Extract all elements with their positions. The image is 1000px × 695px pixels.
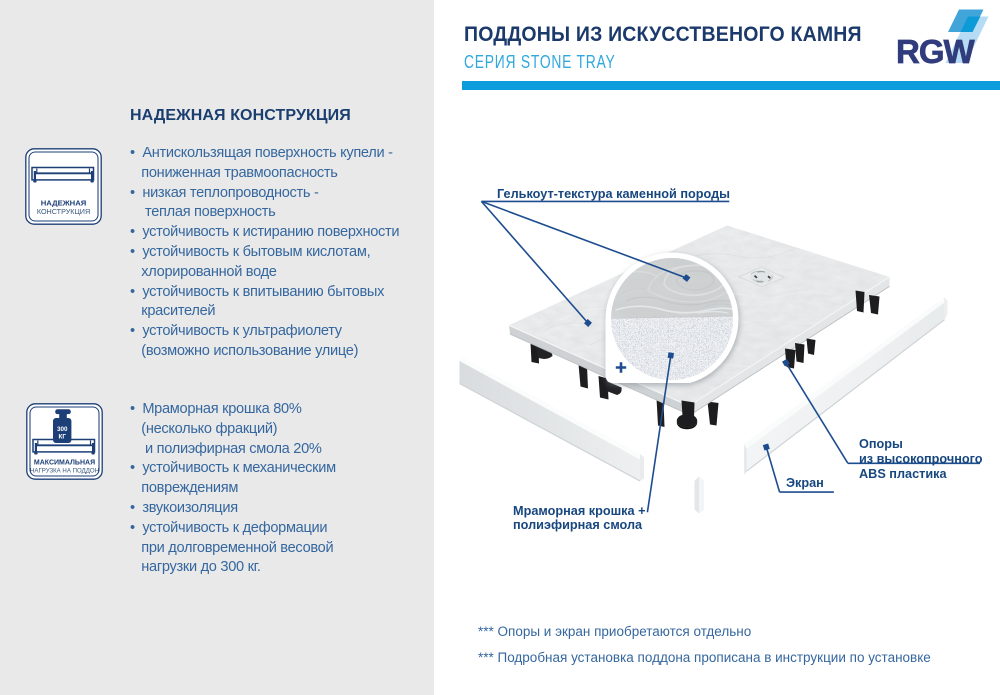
svg-text:КОНСТРУКЦИЯ: КОНСТРУКЦИЯ	[37, 207, 90, 216]
svg-text:300: 300	[57, 426, 68, 433]
svg-text:НАГРУЗКА НА ПОДДОН: НАГРУЗКА НА ПОДДОН	[30, 468, 99, 475]
svg-text:МАКСИМАЛЬНАЯ: МАКСИМАЛЬНАЯ	[34, 460, 95, 467]
svg-text:RGW: RGW	[896, 33, 976, 70]
